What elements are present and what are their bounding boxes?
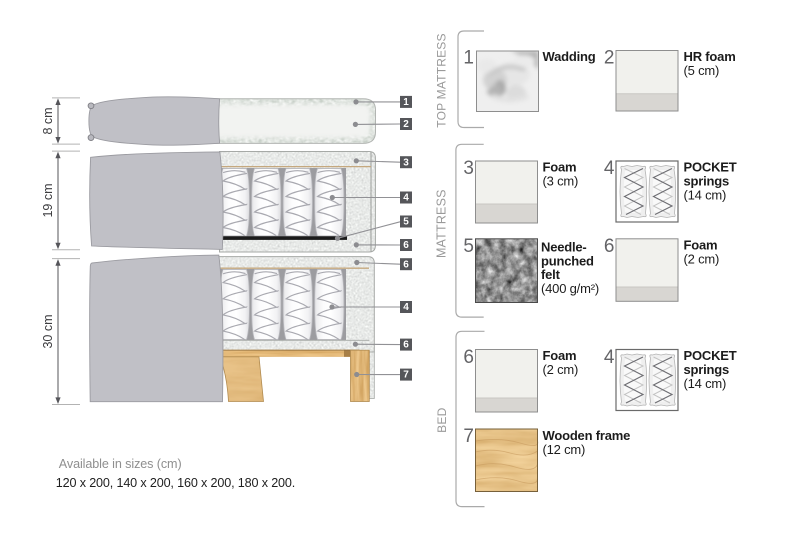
svg-text:4: 4 — [604, 158, 615, 179]
svg-text:Foam: Foam — [543, 348, 577, 363]
svg-text:(5 cm): (5 cm) — [684, 63, 720, 78]
svg-text:HR foam: HR foam — [684, 49, 736, 64]
svg-text:BED: BED — [435, 407, 449, 432]
svg-text:(2 cm): (2 cm) — [684, 252, 720, 267]
svg-text:felt: felt — [541, 267, 561, 282]
svg-text:(12 cm): (12 cm) — [543, 442, 586, 457]
svg-text:120 x 200, 140 x 200, 160 x 20: 120 x 200, 140 x 200, 160 x 200, 180 x 2… — [56, 476, 295, 490]
svg-text:6: 6 — [403, 340, 409, 351]
svg-text:(14 cm): (14 cm) — [684, 188, 727, 203]
svg-text:1: 1 — [463, 48, 474, 69]
svg-text:(3 cm): (3 cm) — [543, 174, 579, 189]
svg-text:4: 4 — [403, 302, 409, 313]
svg-text:8 cm: 8 cm — [41, 107, 55, 134]
svg-text:POCKET: POCKET — [684, 160, 737, 175]
svg-text:Available in sizes (cm): Available in sizes (cm) — [59, 457, 182, 471]
svg-text:POCKET: POCKET — [684, 348, 737, 363]
svg-text:4: 4 — [403, 193, 409, 204]
svg-text:TOP MATTRESS: TOP MATTRESS — [435, 33, 449, 127]
svg-text:Wooden frame: Wooden frame — [543, 428, 631, 443]
svg-text:19 cm: 19 cm — [41, 183, 55, 217]
svg-text:(2 cm): (2 cm) — [543, 362, 579, 377]
svg-text:3: 3 — [463, 158, 474, 179]
svg-text:7: 7 — [403, 370, 409, 381]
svg-text:(400 g/m²): (400 g/m²) — [541, 281, 599, 296]
svg-text:6: 6 — [403, 240, 409, 251]
svg-text:Foam: Foam — [543, 160, 577, 175]
svg-text:springs: springs — [684, 174, 730, 189]
svg-text:7: 7 — [463, 426, 474, 447]
svg-text:MATTRESS: MATTRESS — [435, 189, 449, 258]
svg-text:4: 4 — [604, 347, 615, 368]
svg-text:6: 6 — [604, 236, 615, 257]
svg-text:Foam: Foam — [684, 238, 718, 253]
svg-text:3: 3 — [403, 157, 409, 168]
svg-text:30 cm: 30 cm — [41, 314, 55, 348]
svg-text:5: 5 — [403, 217, 409, 228]
svg-text:6: 6 — [403, 259, 409, 270]
svg-text:springs: springs — [684, 362, 730, 377]
svg-text:(14 cm): (14 cm) — [684, 376, 727, 391]
svg-text:2: 2 — [604, 48, 615, 69]
svg-text:5: 5 — [463, 236, 474, 257]
svg-text:1: 1 — [403, 97, 409, 108]
svg-text:2: 2 — [403, 119, 409, 130]
svg-text:6: 6 — [463, 347, 474, 368]
svg-text:Wadding: Wadding — [543, 49, 596, 64]
